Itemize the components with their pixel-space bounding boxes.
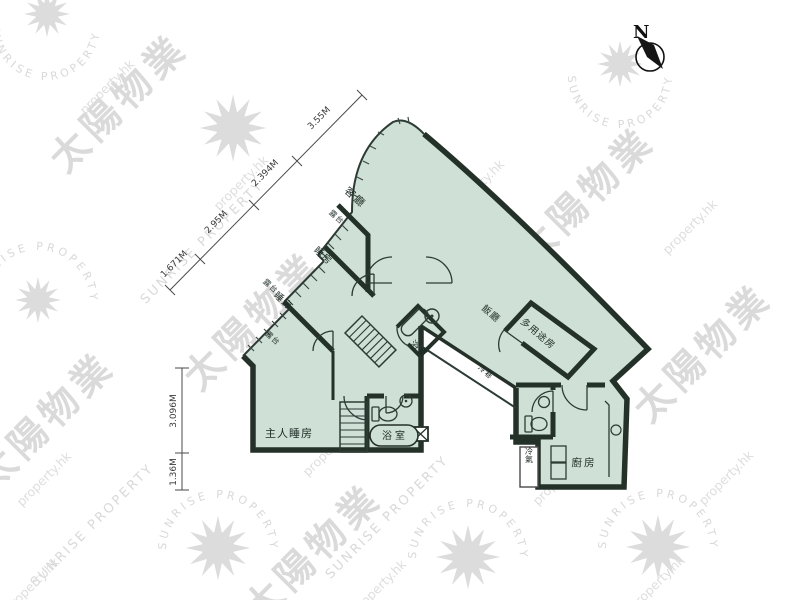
watermark-brand-cn: 太陽物業	[41, 25, 197, 181]
compass: N	[633, 22, 664, 71]
washbasin-drain	[405, 400, 408, 403]
room-label-bath-lower: 浴室	[382, 429, 408, 442]
ac-platform: 冷氣	[520, 446, 538, 487]
sun-icon	[24, 0, 70, 37]
watermark-site: property.hk	[659, 196, 720, 257]
bath-lower-label-box: 浴室	[370, 425, 418, 446]
sun-icon	[15, 277, 61, 323]
watermark-site: property.hk	[348, 556, 409, 600]
sun-icon	[200, 95, 267, 162]
room-label-ac: 冷氣	[525, 446, 534, 463]
watermark-brand-cn: 太陽物業	[625, 275, 781, 431]
watermark-brand-cn: 太陽物業	[0, 343, 124, 499]
dimension-ruler-vertical: 3.096M 1.36M	[169, 368, 189, 490]
watermark-site: property.hk	[695, 447, 756, 508]
watermark-site: property.hk	[1, 554, 62, 600]
washbasin-drain	[431, 315, 434, 318]
room-label-kitchen: 廚房	[572, 456, 597, 469]
sun-icon	[436, 525, 500, 589]
watermark-brand-en: SUNRISE PROPERTY	[138, 178, 267, 307]
sun-icon	[186, 516, 250, 580]
floorplan-canvas: SUNRISE PROPERTY SUNRISE PROPERTY SUNRIS…	[0, 0, 800, 600]
watermark-arc-text: SUNRISE PROPERTY	[0, 25, 103, 83]
sun-icon	[597, 41, 643, 87]
room-label-master: 主人睡房	[265, 427, 313, 440]
dim-label: 3.096M	[169, 394, 179, 428]
dim-label: 1.36M	[169, 458, 179, 486]
